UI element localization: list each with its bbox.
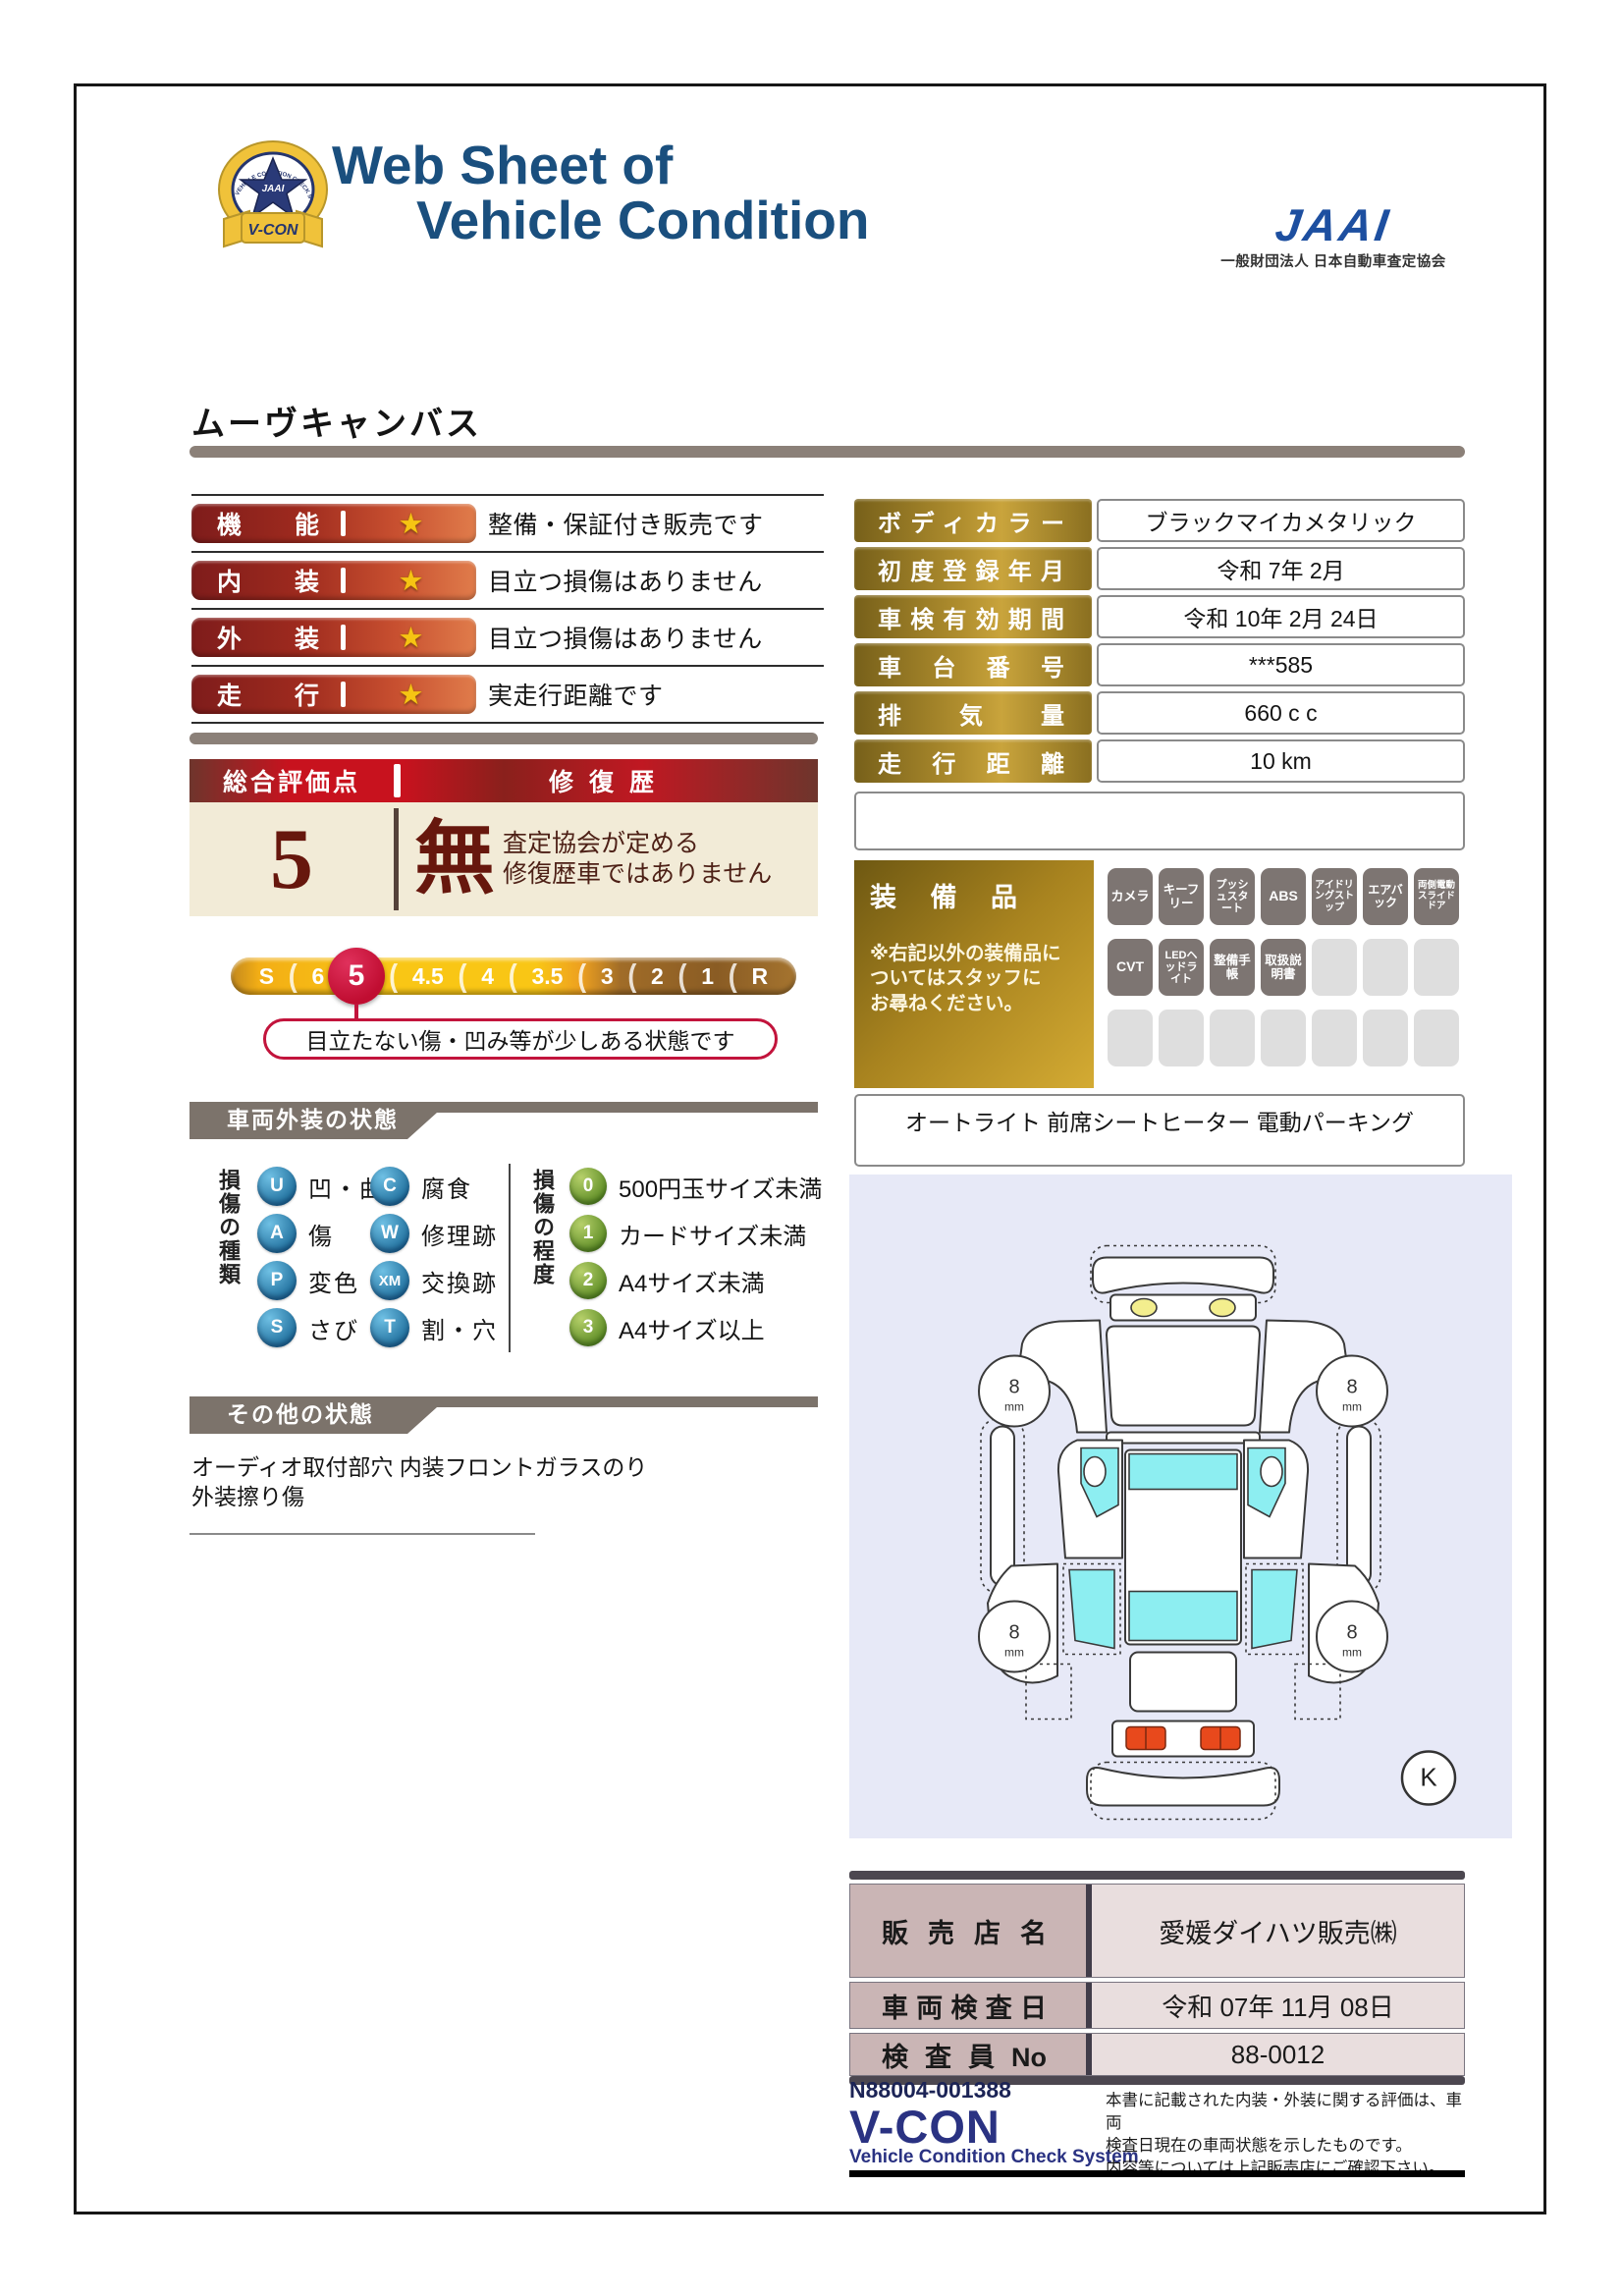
- jaai-subtitle: 一般財団法人 日本自動車査定協会: [1206, 250, 1461, 271]
- equipment-badge-empty: [1261, 1010, 1306, 1066]
- detail-row-displacement: 排気量 660 c c: [854, 691, 1465, 735]
- svg-text:mm: mm: [1004, 1400, 1024, 1414]
- rating-row-exterior: 外装 ★ 目立つ損傷はありません: [191, 608, 824, 665]
- detail-label: 初度登録年月: [878, 552, 1064, 586]
- degree-code-icon: 3: [569, 1309, 607, 1346]
- damage-code-icon: A: [257, 1214, 297, 1253]
- dealer-table-top-bar: [849, 1871, 1465, 1880]
- detail-row-chassis-number: 車台番号 ***585: [854, 643, 1465, 686]
- detail-value: 令和 7年 2月: [1097, 547, 1465, 590]
- dealer-label: 販売店名: [882, 1912, 1047, 1950]
- scale-separator: (: [729, 957, 737, 994]
- svg-text:K: K: [1420, 1763, 1437, 1792]
- vehicle-exterior-diagram: 8 mm 8 mm 8 mm 8 mm K: [849, 1175, 1512, 1838]
- badge-ribbon-text: V-CON: [248, 222, 298, 239]
- legend-item-T: T 割・穴: [370, 1308, 498, 1347]
- scale-separator: (: [389, 957, 398, 994]
- footer-disclaimer: 本書に記載された内装・外装に関する評価は、車両 検査日現在の車両状態を示したもの…: [1106, 2090, 1469, 2180]
- tire-depth-rear-right: 8 mm: [1317, 1602, 1387, 1672]
- degree-code-icon: 0: [569, 1168, 607, 1205]
- taillight-left: [1126, 1727, 1165, 1750]
- tailgate: [1130, 1653, 1236, 1712]
- equipment-badge-empty: [1108, 1010, 1153, 1066]
- rating-row-interior: 内装 ★ 目立つ損傷はありません: [191, 551, 824, 608]
- dealer-label: 検査員No: [882, 2036, 1047, 2074]
- degree-code-icon: 1: [569, 1215, 607, 1252]
- equipment-badge-empty: [1312, 939, 1357, 996]
- sill-left: [991, 1427, 1014, 1586]
- dealer-row-shop: 販売店名 愛媛ダイハツ販売㈱: [849, 1884, 1465, 1978]
- damage-code-icon: C: [370, 1167, 409, 1206]
- rating-pill: 外装 ★: [191, 618, 476, 657]
- tire-depth-rear-left: 8 mm: [979, 1602, 1050, 1672]
- rear-door-window-left: [1069, 1570, 1114, 1649]
- damage-degree-label: 損傷の程度: [526, 1169, 558, 1336]
- scale-item: 4.5: [412, 963, 444, 990]
- equipment-badge-empty: [1159, 1010, 1204, 1066]
- mirror-left: [1084, 1457, 1106, 1487]
- jaai-logo: JAAI: [1203, 202, 1464, 247]
- headlight-right: [1210, 1299, 1235, 1317]
- score-header: 総合評価点 修復歴: [189, 759, 818, 802]
- scale-item: 2: [651, 963, 664, 990]
- equipment-badge-empty: [1363, 939, 1408, 996]
- star-icon: ★: [346, 621, 476, 655]
- rating-label: 機能: [217, 506, 319, 541]
- rating-description: 目立つ損傷はありません: [488, 563, 763, 598]
- rating-pill: 内装 ★: [191, 561, 476, 600]
- star-icon: ★: [346, 678, 476, 712]
- mirror-right: [1261, 1457, 1282, 1487]
- divider-bar-left: [189, 733, 818, 744]
- equipment-badge: カメラ: [1108, 868, 1153, 925]
- detail-label: 走行距離: [878, 744, 1064, 779]
- rating-pill: 機能 ★: [191, 504, 476, 543]
- damage-type-label: 損傷の種類: [212, 1169, 243, 1336]
- detail-label: ボディカラー: [878, 504, 1064, 538]
- detail-value: 660 c c: [1097, 691, 1465, 735]
- equipment-badge: エアバック: [1363, 868, 1408, 925]
- scale-separator: (: [509, 957, 517, 994]
- vcon-badge-logo: VEHICLE CONDITION CHECK SYSTEM JAAI V-CO…: [216, 140, 330, 260]
- equipment-section: 装備品 ※右記以外の装備品に ついてはスタッフに お尋ねください。 カメラ キー…: [854, 860, 1465, 1088]
- scale-item: 1: [701, 963, 714, 990]
- svg-text:8: 8: [1008, 1622, 1019, 1644]
- detail-label: 車検有効期間: [878, 600, 1064, 634]
- svg-text:mm: mm: [1342, 1646, 1362, 1660]
- headlight-left: [1131, 1299, 1157, 1317]
- legend-item-C: C 腐食: [370, 1167, 472, 1206]
- equipment-badge: プッシュスタート: [1210, 868, 1255, 925]
- scale-item: 3: [601, 963, 614, 990]
- svg-text:8: 8: [1346, 1622, 1357, 1644]
- rating-label: 走行: [217, 677, 319, 712]
- jaai-logo-block: JAAI 一般財団法人 日本自動車査定協会: [1206, 202, 1461, 271]
- score-scale-bar: S ( 6 ( 5 ( 4.5 ( 4 ( 3.5 ( 3 ( 2 ( 1 ( …: [231, 957, 796, 995]
- detail-row-inspection-valid: 車検有効期間 令和 10年 2月 24日: [854, 595, 1465, 638]
- tire-depth-front-right: 8 mm: [1317, 1356, 1387, 1427]
- legend-degree-1: 1 カードサイズ未満: [569, 1215, 806, 1252]
- other-condition-text: オーディオ取付部穴 内装フロントガラスのり 外装擦り傷: [191, 1453, 682, 1512]
- page-title-line2: Vehicle Condition: [416, 192, 869, 247]
- legend-item-W: W 修理跡: [370, 1214, 498, 1253]
- legend-item-S: S さび: [257, 1308, 359, 1347]
- dealer-value: 愛媛ダイハツ販売㈱: [1092, 1885, 1464, 1977]
- badge-monogram: JAAI: [262, 184, 285, 194]
- repair-history-cell: 無 査定協会が定める 修復歴車ではありません: [399, 802, 818, 916]
- k-marker: K: [1402, 1752, 1455, 1805]
- score-body: 5 無 査定協会が定める 修復歴車ではありません: [189, 802, 818, 916]
- equipment-badge: ABS: [1261, 868, 1306, 925]
- scale-item: S: [259, 963, 274, 990]
- detail-value: ブラックマイカメタリック: [1097, 499, 1465, 542]
- damage-code-icon: P: [257, 1261, 297, 1300]
- legend-item-U: U 凹・曲: [257, 1167, 385, 1206]
- vehicle-name: ムーヴキャンバス: [191, 397, 482, 445]
- detail-value: 令和 10年 2月 24日: [1097, 595, 1465, 638]
- detail-empty-row: [854, 792, 1465, 850]
- damage-code-icon: S: [257, 1308, 297, 1347]
- equipment-badge-empty: [1414, 1010, 1459, 1066]
- vcon-wordmark: V-CON: [849, 2100, 1001, 2154]
- scale-item: 6: [311, 963, 324, 990]
- scale-separator: (: [289, 957, 298, 994]
- car-unfolded-drawing: 8 mm 8 mm 8 mm 8 mm K: [849, 1175, 1512, 1838]
- rear-door-window-right: [1252, 1570, 1297, 1649]
- scale-separator: (: [627, 957, 636, 994]
- equipment-gold-panel: 装備品 ※右記以外の装備品に ついてはスタッフに お尋ねください。: [854, 860, 1094, 1088]
- scale-separator: (: [678, 957, 687, 994]
- front-bumper: [1093, 1258, 1273, 1293]
- dealer-table: 販売店名 愛媛ダイハツ販売㈱ 車両検査日 令和 07年 11月 08日 検査員N…: [849, 1871, 1465, 2085]
- degree-code-icon: 2: [569, 1262, 607, 1299]
- repair-history-note: 査定協会が定める 修復歴車ではありません: [503, 829, 772, 891]
- damage-code-icon: T: [370, 1308, 409, 1347]
- rear-bumper: [1087, 1768, 1279, 1806]
- rating-row-function: 機能 ★ 整備・保証付き販売です: [191, 494, 824, 551]
- star-icon: ★: [346, 564, 476, 598]
- left-column-rule: [189, 1533, 535, 1535]
- damage-code-icon: XM: [370, 1261, 409, 1300]
- legend-degree-3: 3 A4サイズ以上: [569, 1309, 765, 1346]
- dealer-label: 車両検査日: [882, 1987, 1047, 2025]
- damage-code-icon: U: [257, 1167, 297, 1206]
- legend-degree-0: 0 500円玉サイズ未満: [569, 1168, 822, 1205]
- windshield: [1129, 1454, 1237, 1490]
- sill-right: [1347, 1427, 1371, 1586]
- page-title-line1: Web Sheet of: [332, 137, 869, 192]
- equipment-badge: 両側電動スライドドア: [1414, 868, 1459, 925]
- equipment-title: 装備品: [870, 876, 1017, 914]
- score-header-label: 総合評価点: [189, 763, 394, 798]
- equipment-note: ※右記以外の装備品に ついてはスタッフに お尋ねください。: [870, 942, 1094, 1016]
- star-icon: ★: [346, 507, 476, 541]
- dealer-row-inspection-date: 車両検査日 令和 07年 11月 08日: [849, 1982, 1465, 2029]
- detail-row-first-registration: 初度登録年月 令和 7年 2月: [854, 547, 1465, 590]
- rating-description: 実走行距離です: [488, 677, 664, 712]
- rating-rows: 機能 ★ 整備・保証付き販売です 内装 ★ 目立つ損傷はありません 外装 ★ 目…: [191, 494, 824, 724]
- svg-text:8: 8: [1008, 1377, 1019, 1398]
- detail-label: 排気量: [878, 696, 1064, 731]
- rating-pill: 走行 ★: [191, 675, 476, 714]
- detail-value: ***585: [1097, 643, 1465, 686]
- damage-code-icon: W: [370, 1214, 409, 1253]
- scale-separator: (: [459, 957, 467, 994]
- taillight-right: [1201, 1727, 1240, 1750]
- equipment-badge-grid: カメラ キーフリー プッシュスタート ABS アイドリングストップ エアバック …: [1108, 868, 1465, 1066]
- equipment-badge: CVT: [1108, 939, 1153, 996]
- equipment-badge-empty: [1414, 939, 1459, 996]
- legend-divider: [509, 1164, 511, 1352]
- divider-bar-top: [189, 446, 1465, 458]
- dealer-row-inspector: 検査員No 88-0012: [849, 2033, 1465, 2076]
- selected-score-marker: 5: [328, 948, 385, 1005]
- dealer-value: 88-0012: [1092, 2034, 1464, 2075]
- vcon-subtitle: Vehicle Condition Check System: [849, 2147, 1139, 2168]
- scale-item: 3.5: [531, 963, 563, 990]
- equipment-badge: 整備手帳: [1210, 939, 1255, 996]
- tire-depth-front-left: 8 mm: [979, 1356, 1050, 1427]
- svg-text:mm: mm: [1342, 1400, 1362, 1414]
- scale-item: R: [751, 963, 768, 990]
- hood: [1107, 1327, 1260, 1426]
- section-other-condition: その他の状態: [189, 1396, 818, 1434]
- footer-rule: [849, 2170, 1465, 2177]
- rating-description: 目立つ損傷はありません: [488, 620, 763, 655]
- overall-score-value: 5: [189, 802, 394, 916]
- repair-history-label: 修復歴: [401, 763, 818, 798]
- legend-degree-2: 2 A4サイズ未満: [569, 1262, 765, 1299]
- score-callout: 目立たない傷・凹み等が少しある状態です: [263, 1018, 778, 1060]
- rating-label: 外装: [217, 620, 319, 655]
- rating-description: 整備・保証付き販売です: [488, 506, 764, 541]
- equipment-badge-empty: [1312, 1010, 1357, 1066]
- equipment-badge: 取扱説明書: [1261, 939, 1306, 996]
- legend-item-A: A 傷: [257, 1214, 334, 1253]
- rating-label: 内装: [217, 563, 319, 598]
- svg-text:mm: mm: [1004, 1646, 1024, 1660]
- detail-value: 10 km: [1097, 739, 1465, 783]
- scale-item: 4: [481, 963, 494, 990]
- section-exterior-condition: 車両外装の状態: [189, 1102, 818, 1139]
- legend-item-XM: XM 交換跡: [370, 1261, 498, 1300]
- repair-history-flag: 無: [414, 821, 495, 898]
- equipment-badge-empty: [1210, 1010, 1255, 1066]
- detail-row-body-color: ボディカラー ブラックマイカメタリック: [854, 499, 1465, 542]
- legend-item-P: P 変色: [257, 1261, 359, 1300]
- detail-row-mileage: 走行距離 10 km: [854, 739, 1465, 783]
- svg-text:8: 8: [1346, 1377, 1357, 1398]
- scale-separator: (: [577, 957, 586, 994]
- rating-row-mileage: 走行 ★ 実走行距離です: [191, 665, 824, 724]
- score-header-divider: [394, 764, 401, 797]
- equipment-badge: キーフリー: [1159, 868, 1204, 925]
- rear-window: [1129, 1592, 1237, 1641]
- dealer-value: 令和 07年 11月 08日: [1092, 1983, 1464, 2028]
- detail-label: 車台番号: [878, 648, 1064, 683]
- equipment-badge-empty: [1363, 1010, 1408, 1066]
- equipment-badge: LEDヘッドライト: [1159, 939, 1204, 996]
- page-title: Web Sheet of Vehicle Condition: [332, 137, 869, 247]
- vehicle-condition-sheet: VEHICLE CONDITION CHECK SYSTEM JAAI V-CO…: [74, 83, 1546, 2214]
- overall-score-section: 総合評価点 修復歴 5 無 査定協会が定める 修復歴車ではありません: [189, 759, 818, 916]
- equipment-extra: オートライト 前席シートヒーター 電動パーキング: [854, 1094, 1465, 1167]
- cowl: [1107, 1433, 1260, 1444]
- equipment-badge: アイドリングストップ: [1312, 868, 1357, 925]
